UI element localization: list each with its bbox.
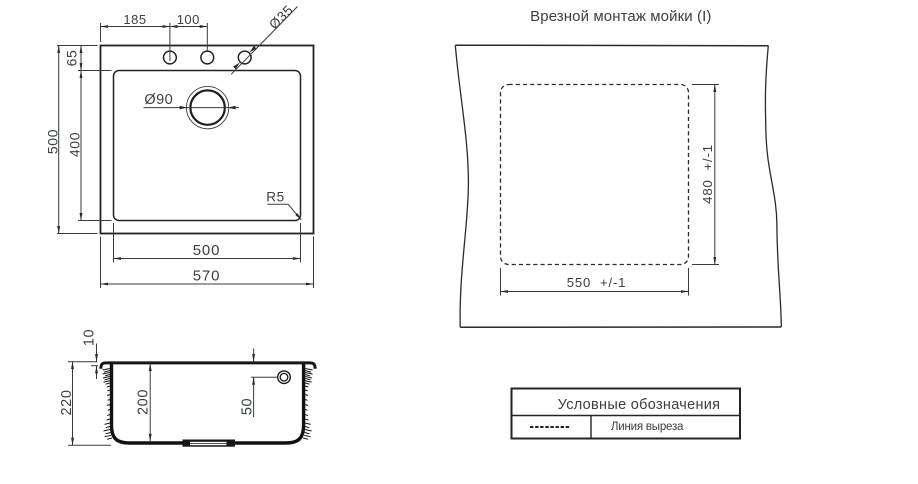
svg-text:500: 500 — [45, 129, 61, 154]
svg-text:Врезной монтаж мойки (I): Врезной монтаж мойки (I) — [530, 8, 711, 25]
svg-text:100: 100 — [177, 12, 200, 27]
svg-text:R5: R5 — [266, 190, 284, 205]
svg-text:480 +/-1: 480 +/-1 — [700, 144, 715, 204]
svg-text:220: 220 — [59, 390, 75, 416]
svg-text:Линия выреза: Линия выреза — [611, 421, 684, 433]
svg-text:500: 500 — [193, 242, 220, 259]
svg-text:200: 200 — [135, 389, 151, 415]
svg-text:Условные обозначения: Условные обозначения — [558, 397, 721, 413]
svg-text:50: 50 — [239, 398, 255, 415]
svg-text:570: 570 — [193, 268, 220, 285]
svg-text:65: 65 — [64, 50, 80, 67]
svg-text:185: 185 — [123, 12, 146, 27]
svg-text:Ø90: Ø90 — [144, 92, 173, 108]
svg-text:550 +/-1: 550 +/-1 — [567, 275, 627, 290]
svg-text:400: 400 — [67, 132, 83, 157]
svg-text:10: 10 — [82, 329, 98, 346]
